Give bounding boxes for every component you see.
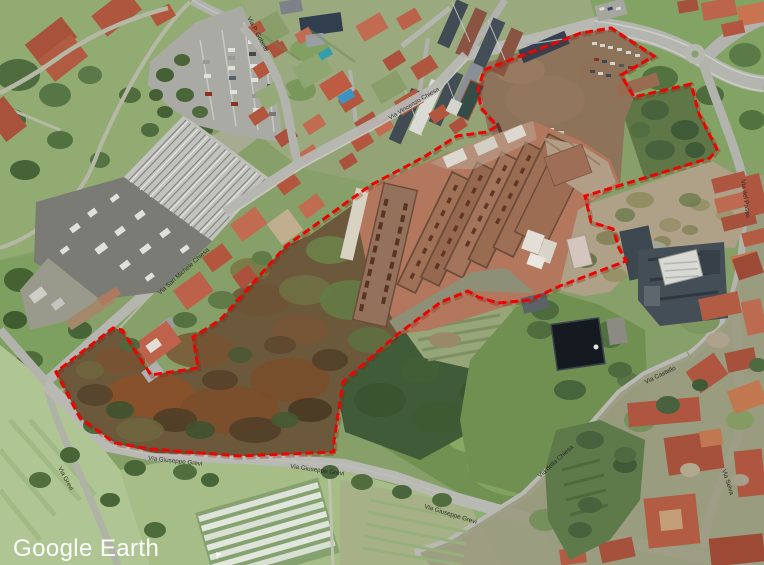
svg-text:Google Earth: Google Earth xyxy=(13,535,159,562)
